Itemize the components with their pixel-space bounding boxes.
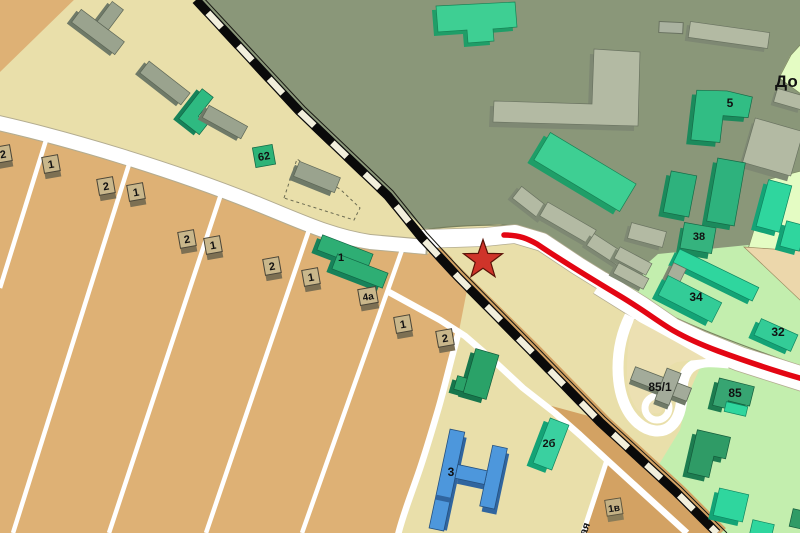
- svg-text:38: 38: [693, 231, 705, 243]
- svg-text:62: 62: [257, 150, 271, 164]
- svg-text:2б: 2б: [543, 438, 556, 450]
- svg-text:До: До: [775, 72, 798, 91]
- svg-text:85: 85: [728, 386, 742, 400]
- svg-text:5: 5: [727, 96, 734, 110]
- svg-text:32: 32: [771, 325, 785, 339]
- svg-text:1в: 1в: [608, 503, 621, 516]
- svg-text:1: 1: [338, 252, 344, 264]
- svg-text:85/1: 85/1: [648, 380, 672, 394]
- svg-text:34: 34: [689, 290, 703, 304]
- svg-text:3: 3: [448, 465, 455, 479]
